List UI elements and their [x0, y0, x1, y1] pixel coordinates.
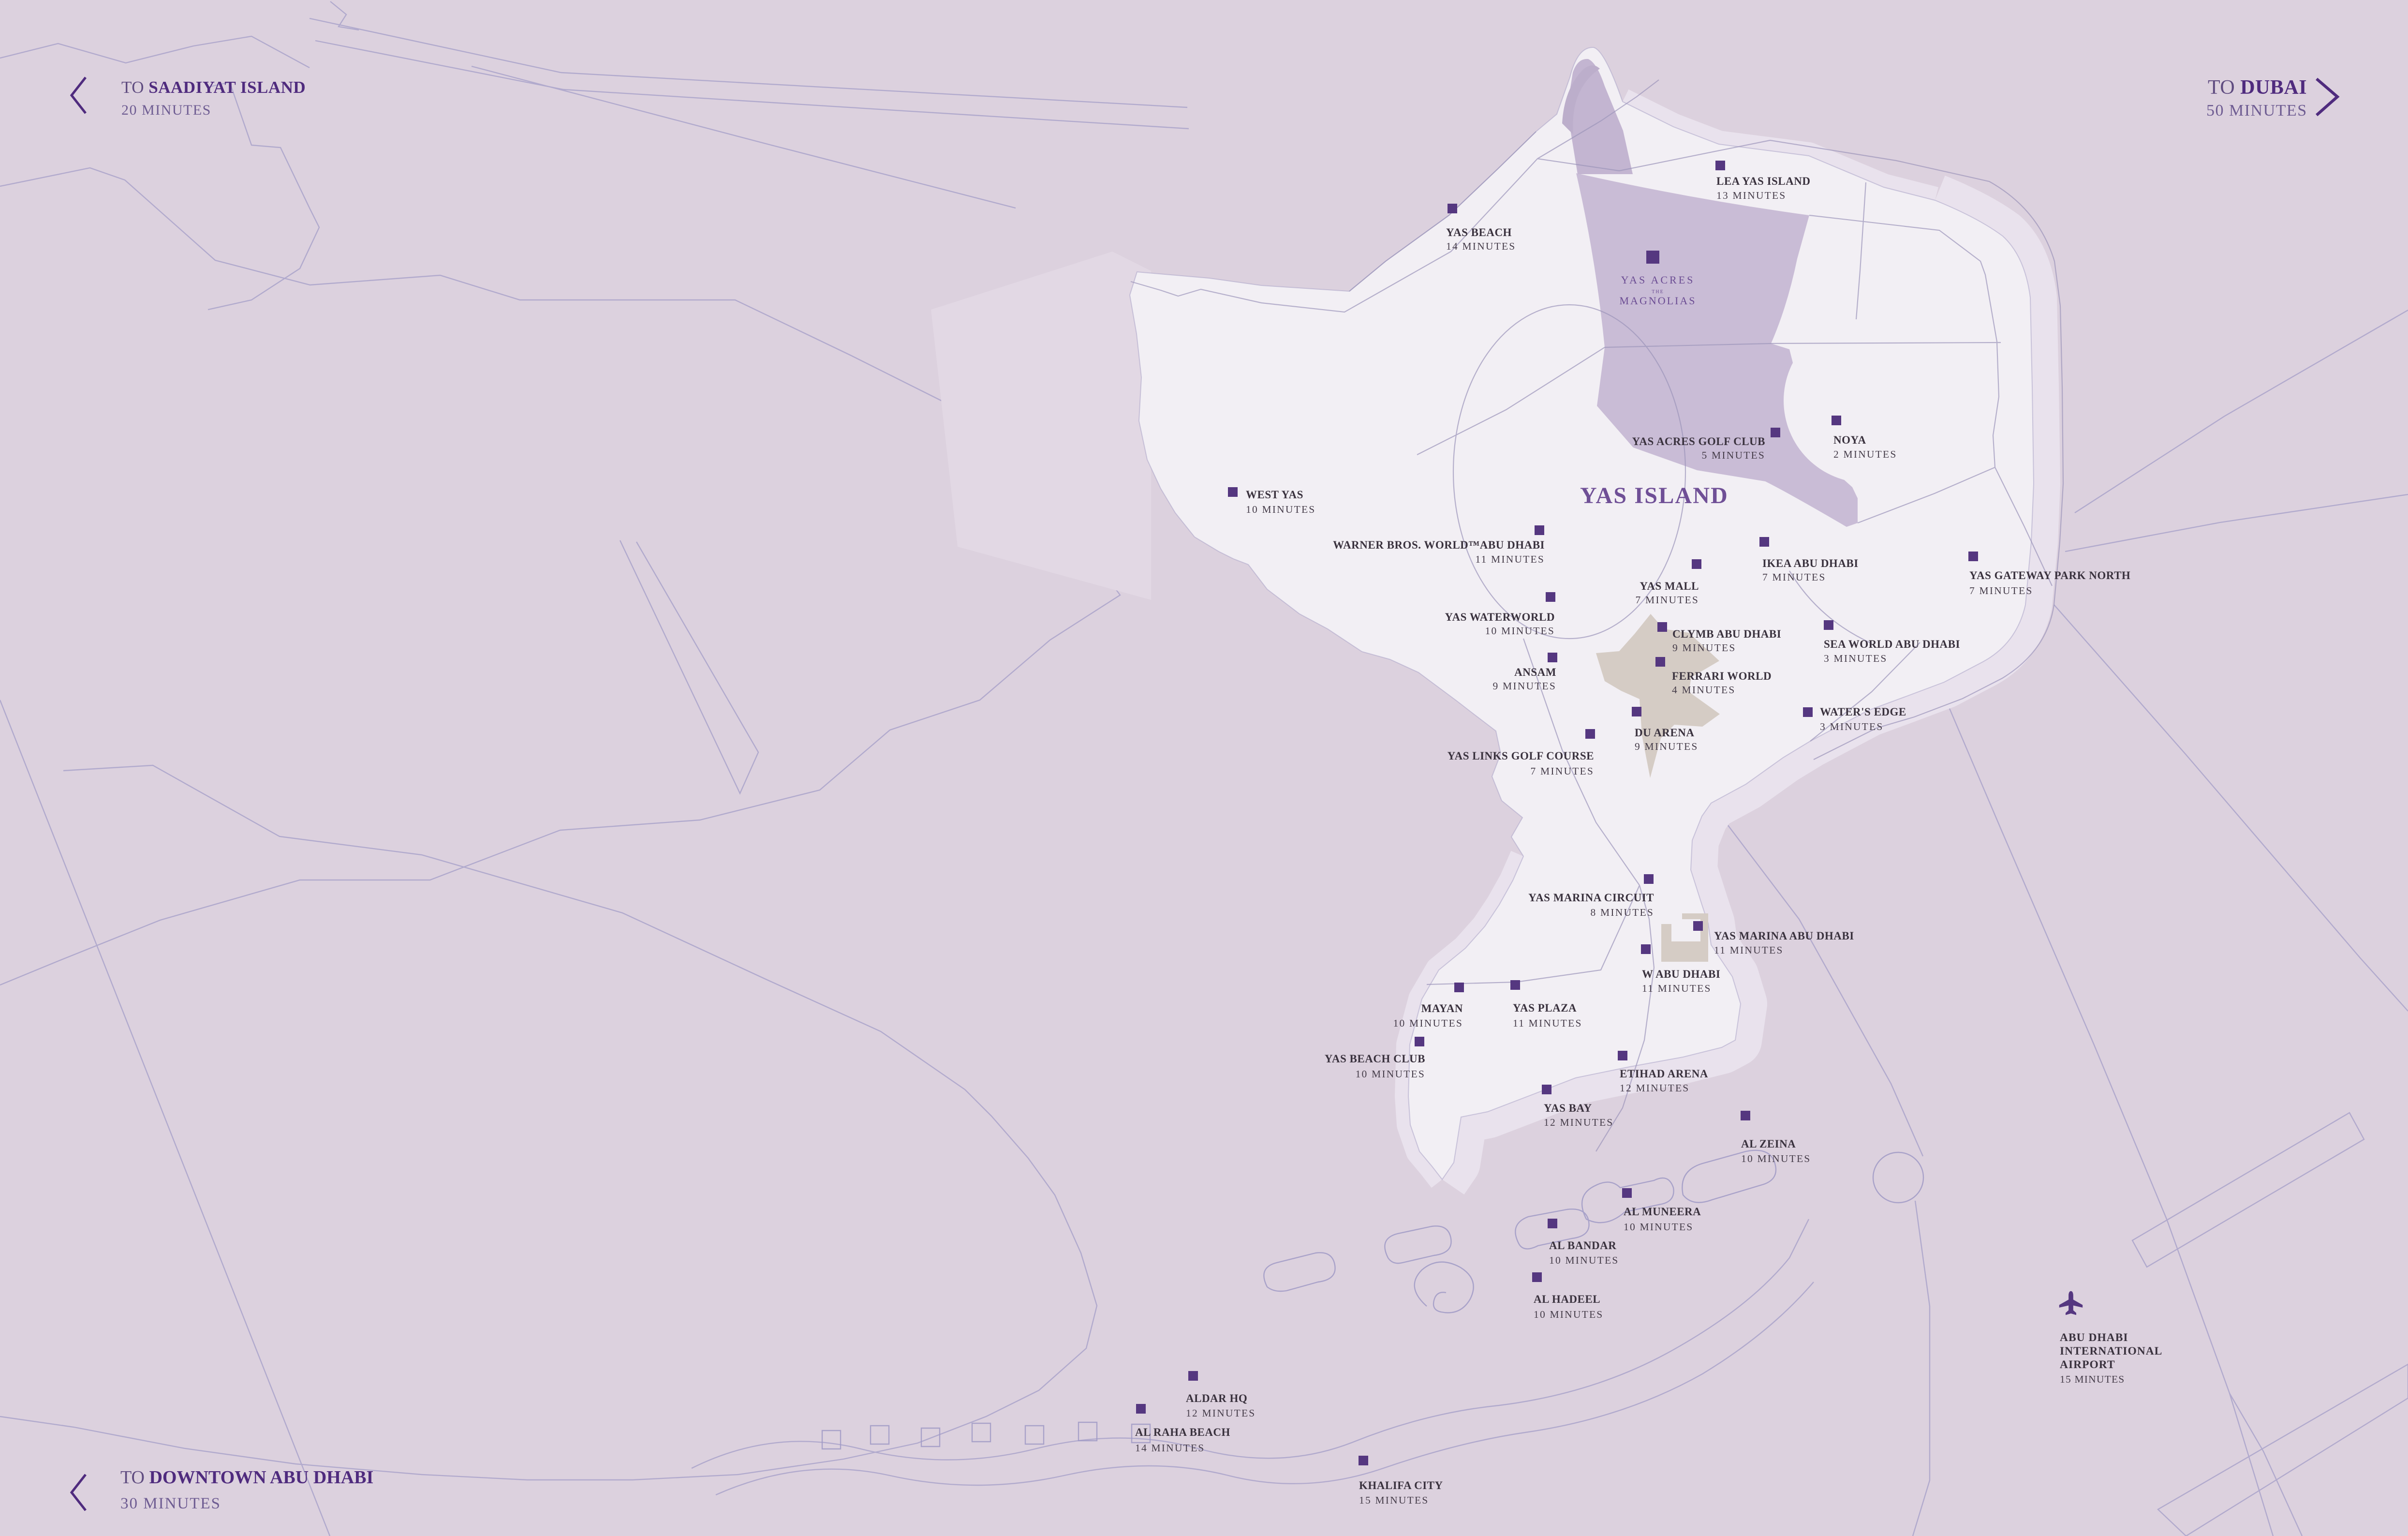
- svg-text:DU ARENA: DU ARENA: [1635, 727, 1694, 739]
- svg-text:MAGNOLIAS: MAGNOLIAS: [1620, 295, 1697, 307]
- svg-text:INTERNATIONAL: INTERNATIONAL: [2060, 1345, 2162, 1357]
- svg-text:AL HADEEL: AL HADEEL: [1534, 1293, 1600, 1305]
- svg-text:TO SAADIYAT ISLAND: TO SAADIYAT ISLAND: [121, 78, 306, 97]
- svg-text:ABU DHABI: ABU DHABI: [2060, 1331, 2128, 1344]
- svg-text:ANSAM: ANSAM: [1514, 666, 1556, 678]
- svg-text:W ABU DHABI: W ABU DHABI: [1642, 968, 1720, 980]
- svg-text:AL BANDAR: AL BANDAR: [1549, 1239, 1616, 1252]
- svg-text:MAYAN: MAYAN: [1421, 1002, 1463, 1014]
- svg-text:KHALIFA CITY: KHALIFA CITY: [1359, 1479, 1443, 1491]
- svg-text:IKEA ABU DHABI: IKEA ABU DHABI: [1762, 557, 1859, 569]
- svg-text:5 MINUTES: 5 MINUTES: [1702, 449, 1765, 461]
- svg-text:9 MINUTES: 9 MINUTES: [1635, 741, 1698, 752]
- svg-text:11 MINUTES: 11 MINUTES: [1714, 944, 1784, 956]
- svg-text:20 MINUTES: 20 MINUTES: [121, 102, 211, 118]
- svg-text:50 MINUTES: 50 MINUTES: [2206, 102, 2307, 119]
- svg-text:YAS WATERWORLD: YAS WATERWORLD: [1445, 611, 1555, 623]
- svg-text:10 MINUTES: 10 MINUTES: [1534, 1309, 1603, 1320]
- svg-text:7 MINUTES: 7 MINUTES: [1636, 594, 1699, 606]
- svg-text:AL MUNEERA: AL MUNEERA: [1624, 1206, 1701, 1218]
- svg-text:3 MINUTES: 3 MINUTES: [1824, 653, 1887, 664]
- svg-text:YAS BEACH: YAS BEACH: [1446, 226, 1512, 239]
- svg-text:ETIHAD ARENA: ETIHAD ARENA: [1620, 1068, 1708, 1080]
- svg-text:13 MINUTES: 13 MINUTES: [1716, 190, 1786, 201]
- svg-text:7 MINUTES: 7 MINUTES: [1531, 765, 1594, 777]
- svg-text:8 MINUTES: 8 MINUTES: [1591, 907, 1654, 918]
- svg-text:AL ZEINA: AL ZEINA: [1741, 1138, 1796, 1150]
- svg-text:SEA WORLD ABU DHABI: SEA WORLD ABU DHABI: [1824, 638, 1960, 650]
- svg-text:YAS ISLAND: YAS ISLAND: [1580, 483, 1728, 508]
- svg-text:CLYMB ABU DHABI: CLYMB ABU DHABI: [1672, 628, 1781, 640]
- svg-text:15 MINUTES: 15 MINUTES: [2060, 1373, 2125, 1385]
- svg-text:WATER'S EDGE: WATER'S EDGE: [1820, 706, 1906, 718]
- svg-text:12 MINUTES: 12 MINUTES: [1544, 1117, 1613, 1128]
- svg-text:11 MINUTES: 11 MINUTES: [1642, 983, 1712, 994]
- svg-text:11 MINUTES: 11 MINUTES: [1475, 553, 1545, 565]
- svg-text:TO DUBAI: TO DUBAI: [2208, 76, 2307, 99]
- svg-text:14 MINUTES: 14 MINUTES: [1446, 240, 1516, 252]
- svg-text:YAS BEACH CLUB: YAS BEACH CLUB: [1325, 1053, 1425, 1065]
- svg-text:10 MINUTES: 10 MINUTES: [1246, 504, 1315, 515]
- svg-text:3 MINUTES: 3 MINUTES: [1820, 721, 1883, 732]
- svg-text:YAS ACRES: YAS ACRES: [1621, 274, 1695, 286]
- svg-text:12 MINUTES: 12 MINUTES: [1186, 1407, 1256, 1419]
- svg-text:10 MINUTES: 10 MINUTES: [1485, 625, 1555, 637]
- svg-text:YAS MARINA ABU DHABI: YAS MARINA ABU DHABI: [1714, 930, 1854, 942]
- svg-text:YAS PLAZA: YAS PLAZA: [1513, 1002, 1577, 1014]
- svg-text:2 MINUTES: 2 MINUTES: [1833, 448, 1897, 460]
- svg-text:15 MINUTES: 15 MINUTES: [1359, 1494, 1429, 1506]
- svg-text:ALDAR HQ: ALDAR HQ: [1186, 1392, 1247, 1404]
- svg-text:10 MINUTES: 10 MINUTES: [1624, 1221, 1693, 1233]
- svg-text:30 MINUTES: 30 MINUTES: [120, 1495, 221, 1512]
- svg-text:AL RAHA BEACH: AL RAHA BEACH: [1135, 1426, 1230, 1438]
- svg-text:YAS LINKS GOLF COURSE: YAS LINKS GOLF COURSE: [1448, 750, 1594, 762]
- svg-text:9 MINUTES: 9 MINUTES: [1493, 680, 1556, 692]
- svg-text:LEA YAS ISLAND: LEA YAS ISLAND: [1716, 175, 1810, 187]
- svg-text:WARNER BROS. WORLD™ABU DHABI: WARNER BROS. WORLD™ABU DHABI: [1333, 539, 1545, 551]
- svg-text:YAS BAY: YAS BAY: [1544, 1102, 1592, 1114]
- svg-text:10 MINUTES: 10 MINUTES: [1741, 1153, 1811, 1164]
- svg-text:YAS MARINA CIRCUIT: YAS MARINA CIRCUIT: [1528, 892, 1654, 904]
- svg-text:11 MINUTES: 11 MINUTES: [1513, 1017, 1582, 1029]
- svg-text:4 MINUTES: 4 MINUTES: [1672, 684, 1735, 696]
- svg-text:THE: THE: [1652, 289, 1664, 295]
- svg-text:NOYA: NOYA: [1833, 434, 1866, 446]
- svg-text:14 MINUTES: 14 MINUTES: [1135, 1442, 1205, 1454]
- svg-text:YAS ACRES GOLF CLUB: YAS ACRES GOLF CLUB: [1632, 435, 1765, 447]
- svg-text:10 MINUTES: 10 MINUTES: [1549, 1254, 1619, 1266]
- svg-text:10 MINUTES: 10 MINUTES: [1356, 1068, 1425, 1080]
- svg-text:AIRPORT: AIRPORT: [2060, 1358, 2115, 1371]
- svg-text:12 MINUTES: 12 MINUTES: [1620, 1082, 1689, 1094]
- svg-text:YAS MALL: YAS MALL: [1640, 580, 1699, 592]
- svg-text:7 MINUTES: 7 MINUTES: [1762, 571, 1826, 583]
- svg-text:9 MINUTES: 9 MINUTES: [1672, 642, 1736, 654]
- svg-text:YAS GATEWAY PARK NORTH: YAS GATEWAY PARK NORTH: [1969, 569, 2130, 582]
- svg-text:TO DOWNTOWN ABU DHABI: TO DOWNTOWN ABU DHABI: [120, 1467, 373, 1488]
- svg-text:10 MINUTES: 10 MINUTES: [1393, 1017, 1463, 1029]
- svg-text:7 MINUTES: 7 MINUTES: [1969, 585, 2033, 597]
- svg-text:FERRARI WORLD: FERRARI WORLD: [1672, 670, 1772, 682]
- svg-text:WEST YAS: WEST YAS: [1246, 489, 1303, 501]
